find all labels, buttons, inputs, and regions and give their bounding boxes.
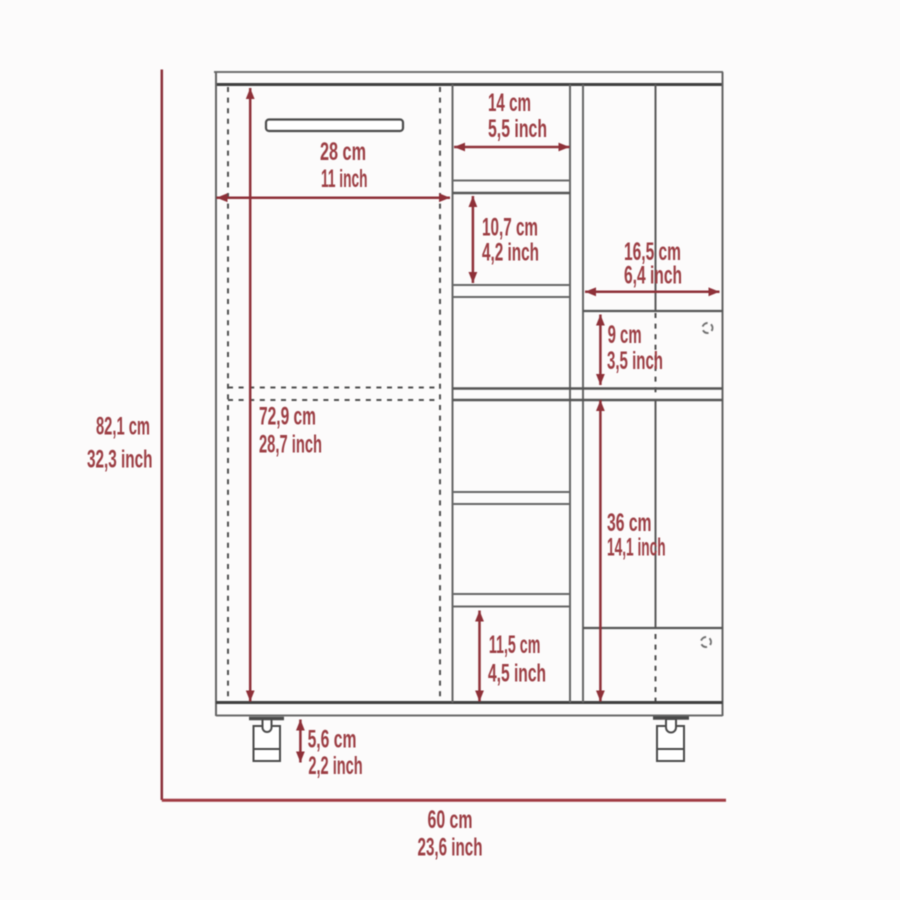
svg-text:28 cm: 28 cm xyxy=(320,138,366,166)
svg-text:2,2 inch: 2,2 inch xyxy=(308,752,362,780)
svg-text:82,1 cm: 82,1 cm xyxy=(96,413,150,441)
svg-text:3,5 inch: 3,5 inch xyxy=(607,347,663,375)
svg-text:6,4 inch: 6,4 inch xyxy=(624,262,682,290)
svg-text:4,5 inch: 4,5 inch xyxy=(488,660,546,688)
svg-text:28,7 inch: 28,7 inch xyxy=(259,431,322,459)
svg-text:72,9 cm: 72,9 cm xyxy=(259,403,316,431)
svg-text:5,6 cm: 5,6 cm xyxy=(308,726,357,754)
svg-text:11 inch: 11 inch xyxy=(321,165,368,193)
svg-text:23,6 inch: 23,6 inch xyxy=(418,834,483,862)
svg-text:14 cm: 14 cm xyxy=(488,89,531,117)
svg-text:4,2 inch: 4,2 inch xyxy=(482,239,539,267)
svg-text:10,7 cm: 10,7 cm xyxy=(482,214,538,242)
svg-text:60 cm: 60 cm xyxy=(428,806,473,834)
svg-text:5,5 inch: 5,5 inch xyxy=(488,115,547,143)
svg-text:11,5 cm: 11,5 cm xyxy=(489,631,541,659)
svg-text:32,3 inch: 32,3 inch xyxy=(87,446,153,474)
svg-text:14,1 inch: 14,1 inch xyxy=(607,534,666,562)
svg-text:9 cm: 9 cm xyxy=(608,321,642,349)
